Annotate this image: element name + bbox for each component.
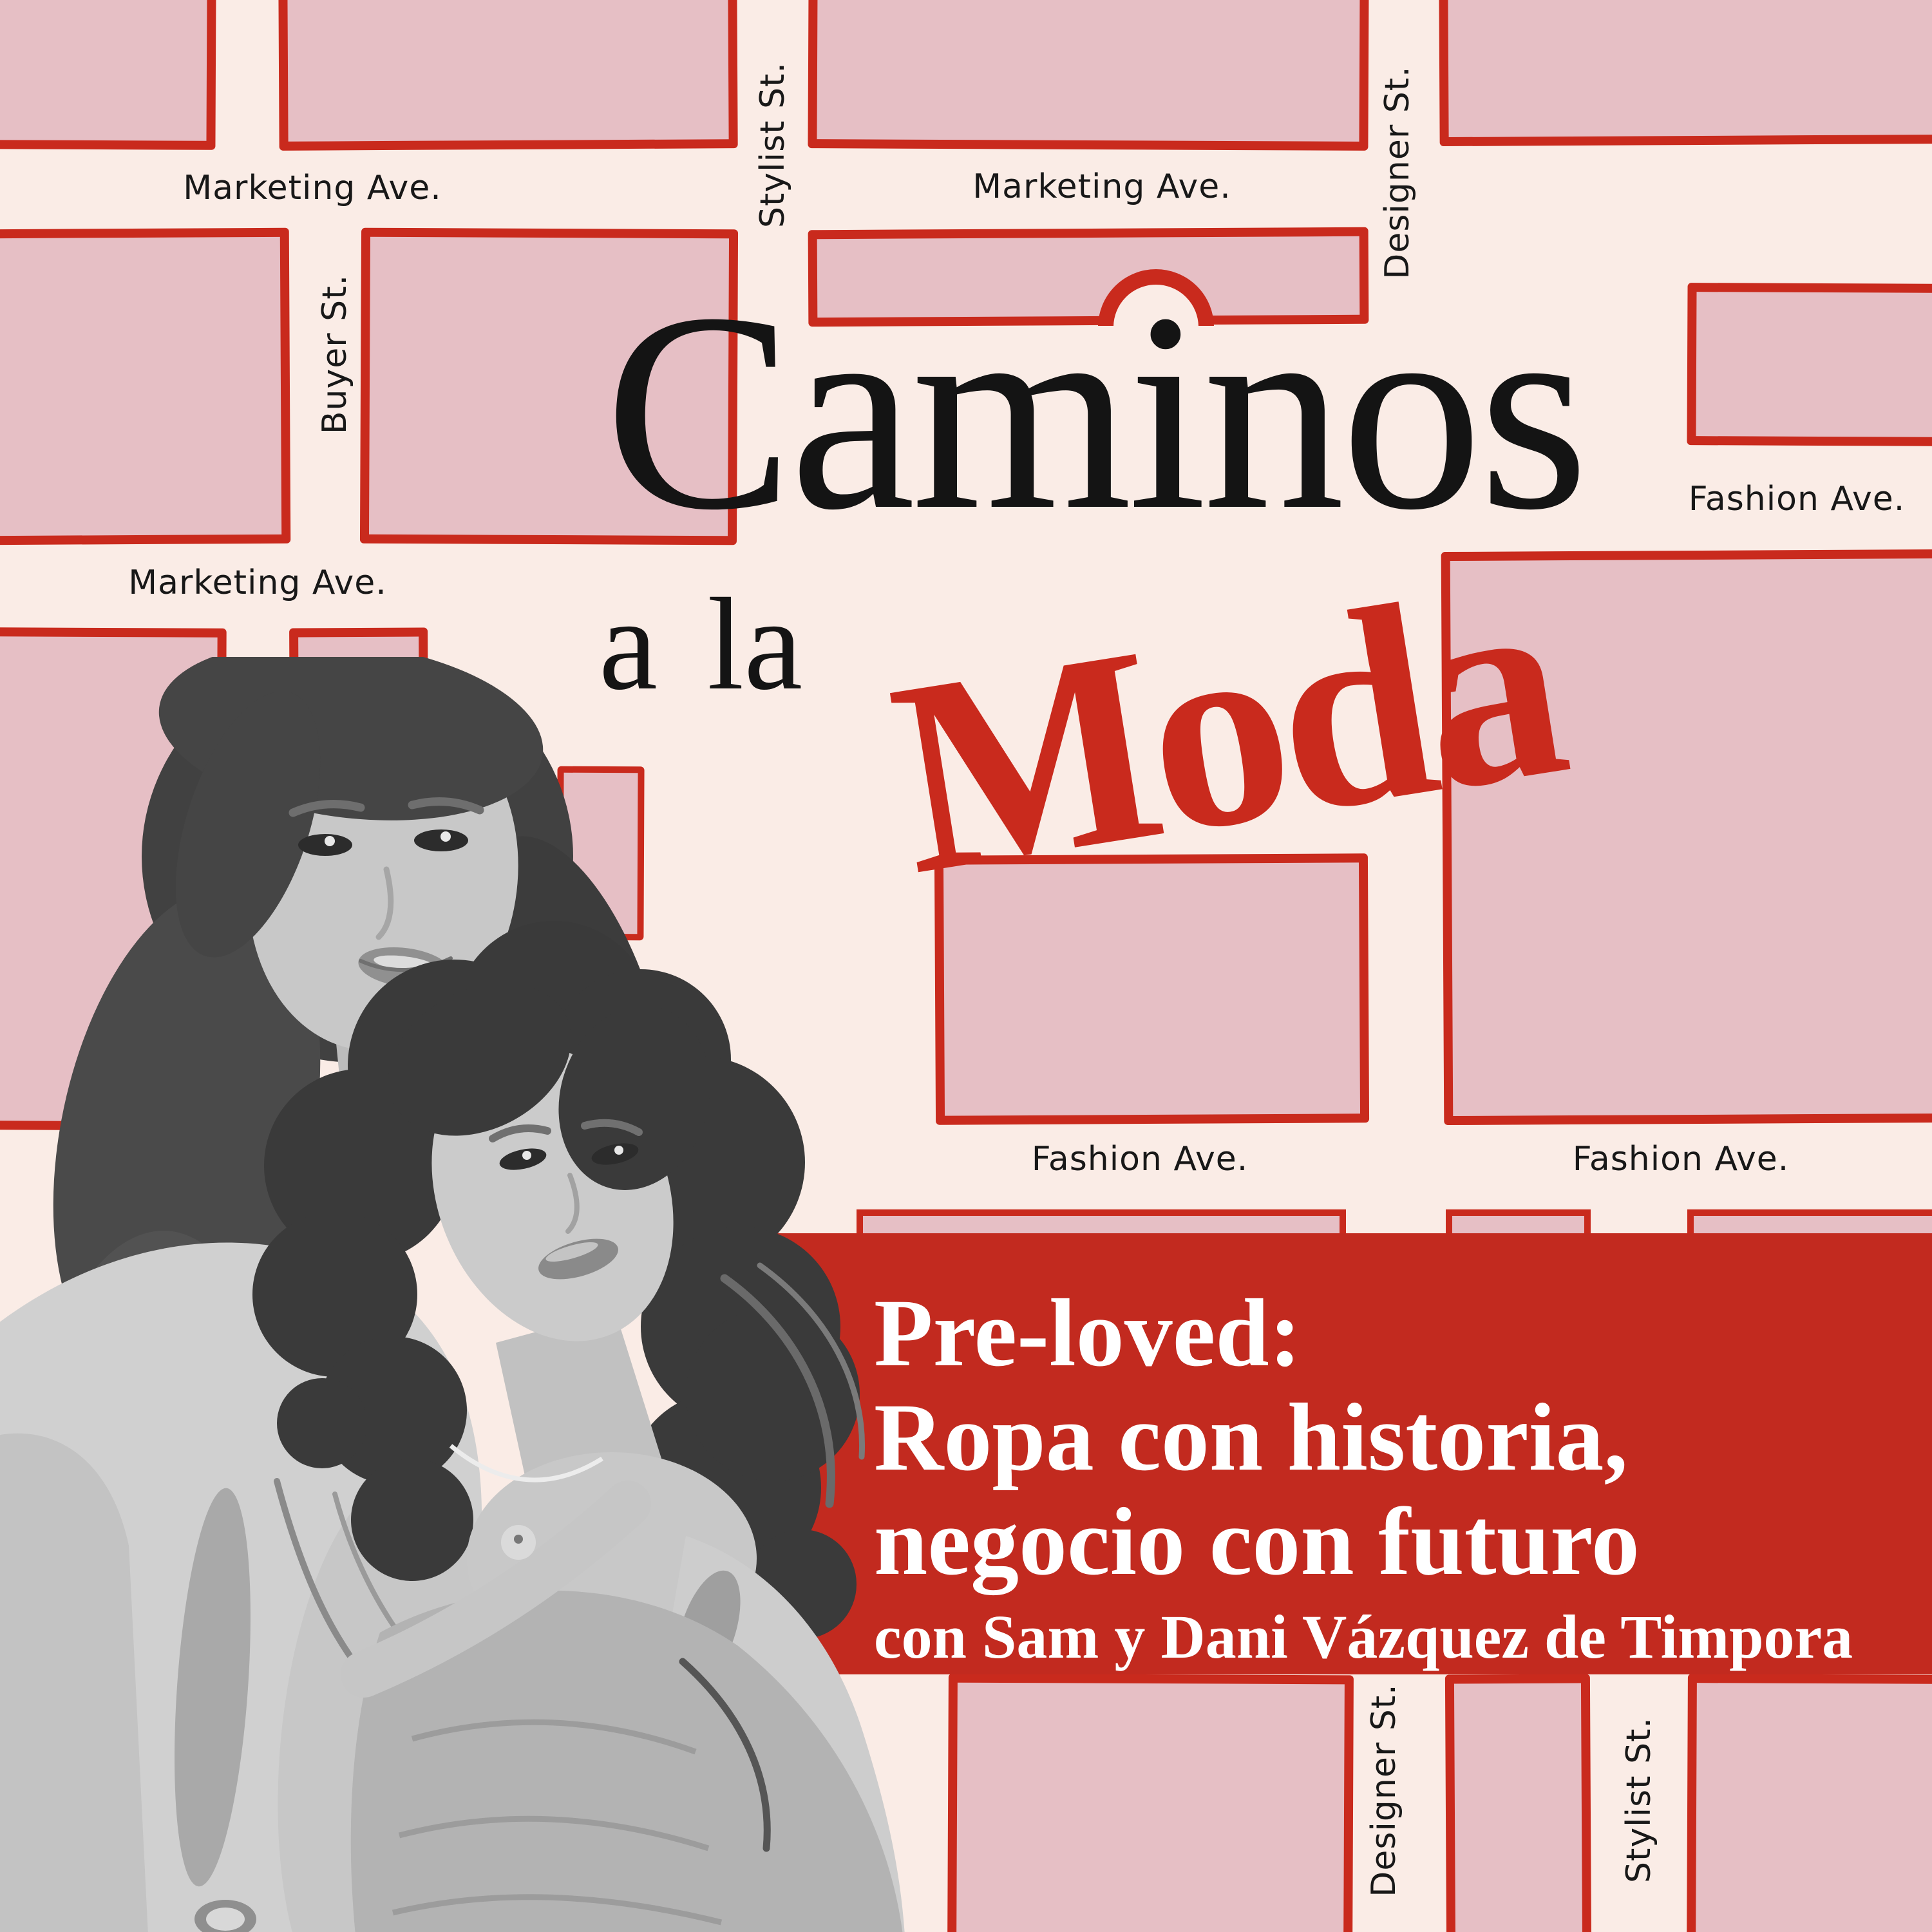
- city-block: [1687, 1209, 1932, 1235]
- city-block: [1445, 1674, 1591, 1932]
- city-block: [0, 0, 216, 150]
- city-block: [278, 0, 737, 151]
- city-block: [0, 228, 290, 545]
- street-label-marketing-ave-top-center: Marketing Ave.: [972, 167, 1231, 206]
- city-block: [1439, 0, 1932, 146]
- street-label-stylist-st-bottom: Stylist St.: [1620, 1717, 1658, 1883]
- episode-title-line-2: Ropa con historia,: [874, 1385, 1913, 1490]
- hosts-photo-cutout: [0, 657, 927, 1932]
- street-label-fashion-ave-center-right: Fashion Ave.: [1573, 1140, 1790, 1179]
- street-label-buyer-st: Buyer St.: [316, 274, 354, 434]
- show-title-line-1: Caminos: [515, 270, 1674, 554]
- episode-title-line-1: Pre-loved:: [874, 1281, 1913, 1385]
- episode-title-line-3: negocio con futuro: [874, 1490, 1913, 1594]
- city-block: [1687, 1674, 1932, 1932]
- street-label-designer-st-bottom: Designer St.: [1365, 1683, 1403, 1897]
- city-block: [1687, 283, 1932, 446]
- street-label-fashion-ave-right: Fashion Ave.: [1689, 480, 1906, 518]
- city-block: [1446, 1209, 1591, 1235]
- city-block: [808, 0, 1368, 151]
- street-label-marketing-ave-left: Marketing Ave.: [128, 563, 387, 602]
- city-block: [947, 1674, 1354, 1932]
- city-block: [857, 1209, 1346, 1235]
- street-label-designer-st-top: Designer St.: [1378, 66, 1417, 279]
- podcast-cover: Marketing Ave. Stylist St. Marketing Ave…: [0, 0, 1932, 1932]
- episode-guests-byline: con Sam y Dani Vázquez de Timpora: [874, 1603, 1913, 1671]
- street-label-fashion-ave-center: Fashion Ave.: [1032, 1140, 1249, 1179]
- street-label-stylist-st-top: Stylist St.: [753, 62, 792, 228]
- street-label-marketing-ave-top-left: Marketing Ave.: [183, 169, 442, 207]
